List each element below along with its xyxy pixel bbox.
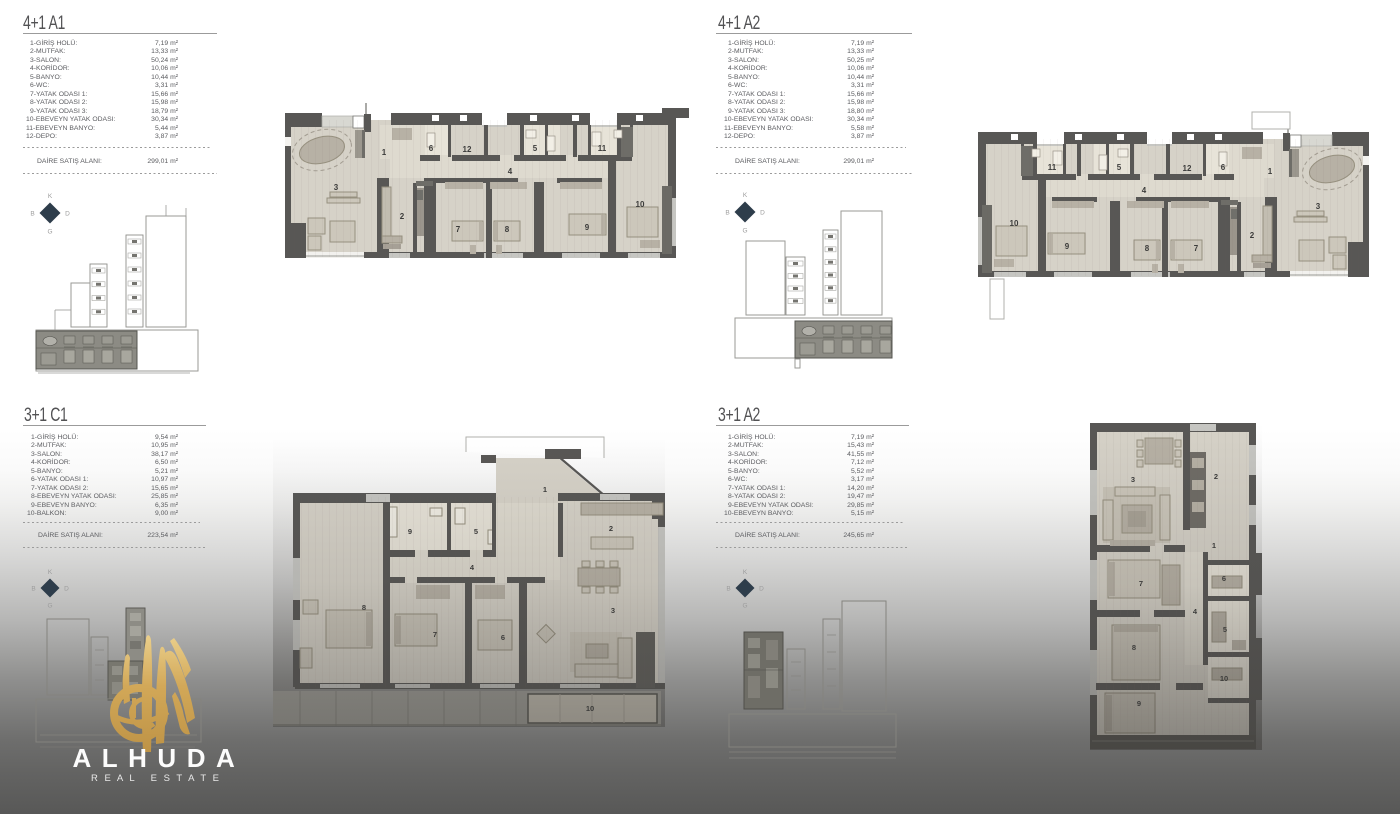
svg-text:D: D [64, 585, 69, 592]
svg-text:D: D [760, 209, 765, 216]
svg-text:D: D [759, 585, 764, 592]
svg-text:1: 1 [543, 485, 547, 494]
svg-text:B: B [725, 209, 729, 216]
svg-text:G: G [47, 229, 52, 236]
svg-text:K: K [743, 569, 748, 576]
svg-text:G: G [742, 603, 747, 610]
svg-text:K: K [48, 569, 53, 576]
svg-text:B: B [31, 585, 35, 592]
svg-text:K: K [743, 192, 748, 199]
svg-text:B: B [726, 585, 730, 592]
svg-text:G: G [742, 228, 747, 235]
svg-text:B: B [30, 210, 34, 217]
svg-text:K: K [48, 193, 53, 200]
svg-text:10: 10 [586, 704, 594, 713]
svg-text:G: G [47, 603, 52, 610]
svg-text:D: D [65, 210, 70, 217]
